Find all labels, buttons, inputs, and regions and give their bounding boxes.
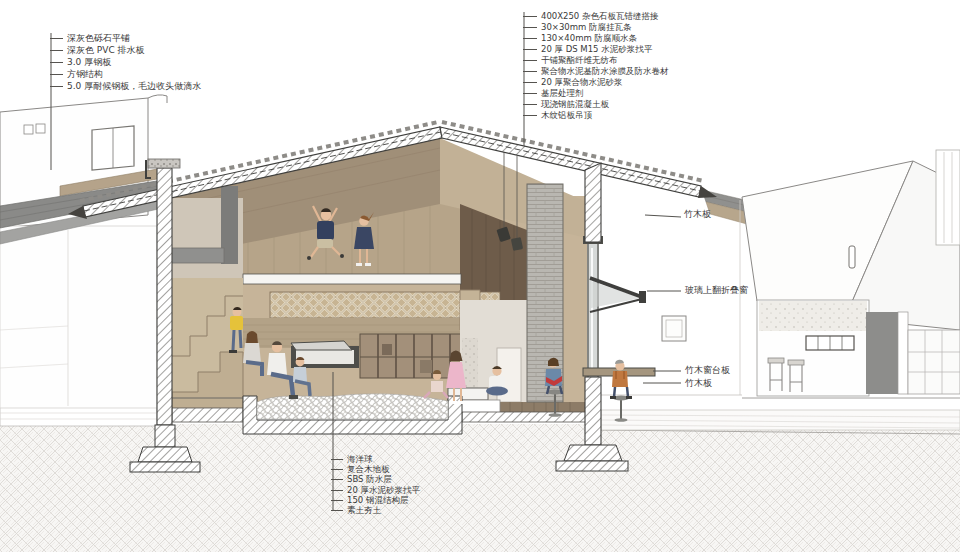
annotation-text: 130×40mm 防腐顺水条	[541, 34, 637, 43]
annotation-label: 聚合物水泥基防水涂膜及防水卷材	[523, 66, 669, 77]
annotation-label: 干铺聚酯纤维无纺布	[523, 55, 669, 66]
annotation-label: 木纹铝板吊顶	[523, 110, 669, 121]
annotation-text: 20 厚 DS M15 水泥砂浆找平	[541, 45, 652, 54]
annotation-text: 木纹铝板吊顶	[541, 111, 592, 120]
annotation-text: 30×30mm 防腐挂瓦条	[541, 23, 632, 32]
annotation-label: 3.0 厚钢板	[50, 56, 201, 68]
leader-tick	[523, 38, 537, 39]
leader-tick	[331, 490, 343, 491]
foldup-window	[583, 236, 646, 377]
leader-tick	[523, 60, 537, 61]
annotation-label: 5.0 厚耐候钢板，毛边收头做滴水	[50, 80, 201, 92]
loft-floor-edge	[243, 274, 461, 284]
leader-tick	[50, 38, 63, 39]
left-terrace-floor	[0, 406, 157, 426]
annotation-label: 深灰色砾石平铺	[50, 32, 201, 44]
annotation-text: 素土夯土	[347, 506, 381, 515]
left-cut-wall	[157, 168, 172, 425]
annotation-label: 方钢结构	[50, 68, 201, 80]
leader-tick	[331, 510, 343, 511]
annotation-label: 现浇钢筋混凝土板	[523, 99, 669, 110]
architectural-section-drawing: 深灰色砾石平铺 深灰色 PVC 排水板 3.0 厚钢板 方钢结构 5.0 厚耐候…	[0, 0, 960, 552]
leader-tick	[50, 50, 63, 51]
ball-pit	[243, 394, 462, 434]
annotation-text: 干铺聚酯纤维无纺布	[541, 56, 618, 65]
annotation-label: 素土夯土	[331, 505, 420, 515]
annotation-label: 130×40mm 防腐顺水条	[523, 33, 669, 44]
annotation-text: 400X250 杂色石板瓦错缝搭接	[541, 12, 658, 21]
annotation-group-roof-left-layers: 深灰色砾石平铺 深灰色 PVC 排水板 3.0 厚钢板 方钢结构 5.0 厚耐候…	[50, 32, 201, 92]
annotation-text: 深灰色 PVC 排水板	[67, 46, 145, 55]
annotation-text: SBS 防水层	[347, 475, 392, 484]
leader-tick	[523, 27, 537, 28]
annotation-label: 20 厚水泥砂浆找平	[331, 485, 420, 495]
annotation-text: 20 厚聚合物水泥砂浆	[541, 78, 623, 87]
annotation-text: 基层处理剂	[541, 89, 584, 98]
right-cut-wall	[585, 377, 601, 445]
annotation-text: 5.0 厚耐候钢板，毛边收头做滴水	[67, 82, 201, 91]
annotation-label: 基层处理剂	[523, 88, 669, 99]
annotation-label-foldup-window: 玻璃上翻折叠窗	[685, 286, 748, 295]
leader-tick	[331, 459, 343, 460]
annotation-label: 20 厚聚合物水泥砂浆	[523, 77, 669, 88]
leader-tick	[523, 71, 537, 72]
leader-tick	[331, 469, 343, 470]
annotation-text: 20 厚水泥砂浆找平	[347, 486, 420, 495]
annotation-text: 方钢结构	[67, 70, 103, 79]
annotation-label: 复合木地板	[331, 464, 420, 474]
ground-earth-hatch	[0, 424, 960, 552]
annotation-label-bamboo-deck: 竹木板	[685, 379, 712, 388]
annotation-text: 150 钢混结构层	[347, 496, 408, 505]
leader-tick	[523, 104, 537, 105]
right-deck	[601, 410, 960, 430]
leader-tick	[50, 74, 63, 75]
annotation-label-window-sill: 竹木窗台板	[685, 366, 730, 375]
annotation-label: 20 厚 DS M15 水泥砂浆找平	[523, 44, 669, 55]
annotation-text: 深灰色砾石平铺	[67, 34, 130, 43]
annotation-text: 海洋球	[347, 455, 373, 464]
leader-tick	[523, 82, 537, 83]
leader-tick	[50, 86, 63, 87]
annotation-group-roof-right-layers: 400X250 杂色石板瓦错缝搭接 30×30mm 防腐挂瓦条 130×40mm…	[523, 11, 669, 121]
annotation-label: SBS 防水层	[331, 475, 420, 485]
annotation-group-floor-layers: 海洋球 复合木地板 SBS 防水层 20 厚水泥砂浆找平 150 钢混结构层 素…	[331, 454, 420, 516]
annotation-text: 聚合物水泥基防水涂膜及防水卷材	[541, 67, 669, 76]
annotation-label: 海洋球	[331, 454, 420, 464]
leader-tick	[523, 49, 537, 50]
right-eave-drip	[698, 186, 717, 198]
annotation-label-bamboo-soffit: 竹木板	[684, 210, 711, 219]
annotation-label: 深灰色 PVC 排水板	[50, 44, 201, 56]
leader-tick	[523, 16, 537, 17]
annotation-text: 3.0 厚钢板	[67, 58, 111, 67]
gravel-cap	[148, 159, 180, 168]
right-background-building	[742, 150, 960, 398]
annotation-label: 400X250 杂色石板瓦错缝搭接	[523, 11, 669, 22]
leader-tick	[331, 500, 343, 501]
leader-tick	[331, 479, 343, 480]
right-cut-beam	[585, 163, 601, 242]
leader-tick	[523, 115, 537, 116]
leader-tick	[523, 93, 537, 94]
annotation-text: 复合木地板	[347, 465, 390, 474]
left-background-building	[0, 95, 167, 408]
leader-tick	[50, 62, 63, 63]
annotation-label: 30×30mm 防腐挂瓦条	[523, 22, 669, 33]
annotation-label: 150 钢混结构层	[331, 495, 420, 505]
annotation-text: 现浇钢筋混凝土板	[541, 100, 609, 109]
